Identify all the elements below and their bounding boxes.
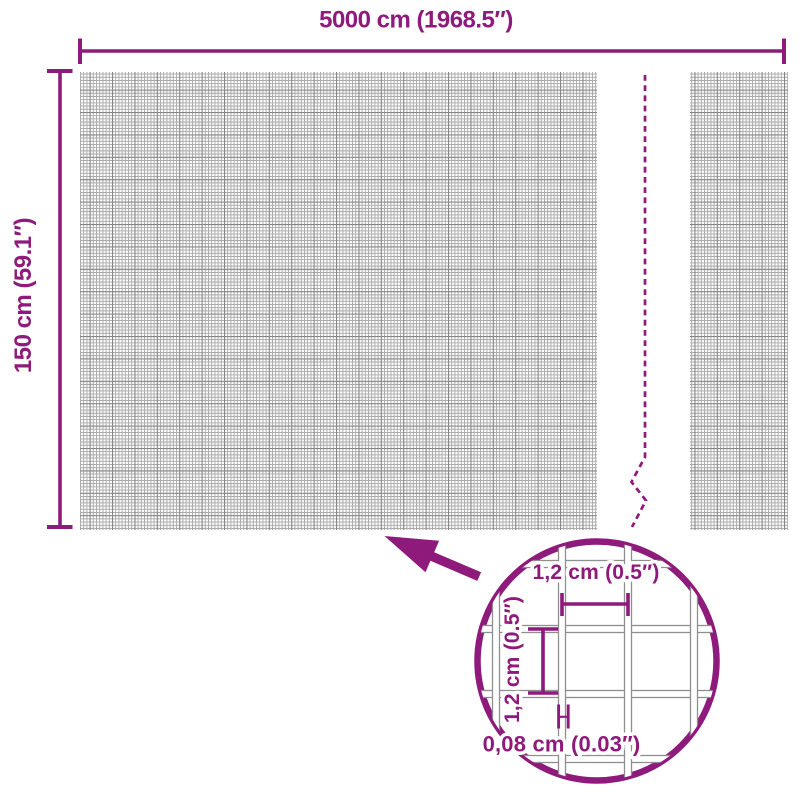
svg-text:1,2 cm (0.5″): 1,2 cm (0.5″) [501,596,524,723]
svg-text:150 cm (59.1″): 150 cm (59.1″) [10,218,37,373]
svg-text:5000 cm (1968.5″): 5000 cm (1968.5″) [319,7,513,34]
svg-text:0,08 cm (0.03″): 0,08 cm (0.03″) [483,732,641,757]
svg-text:1,2 cm (0.5″): 1,2 cm (0.5″) [532,561,659,584]
